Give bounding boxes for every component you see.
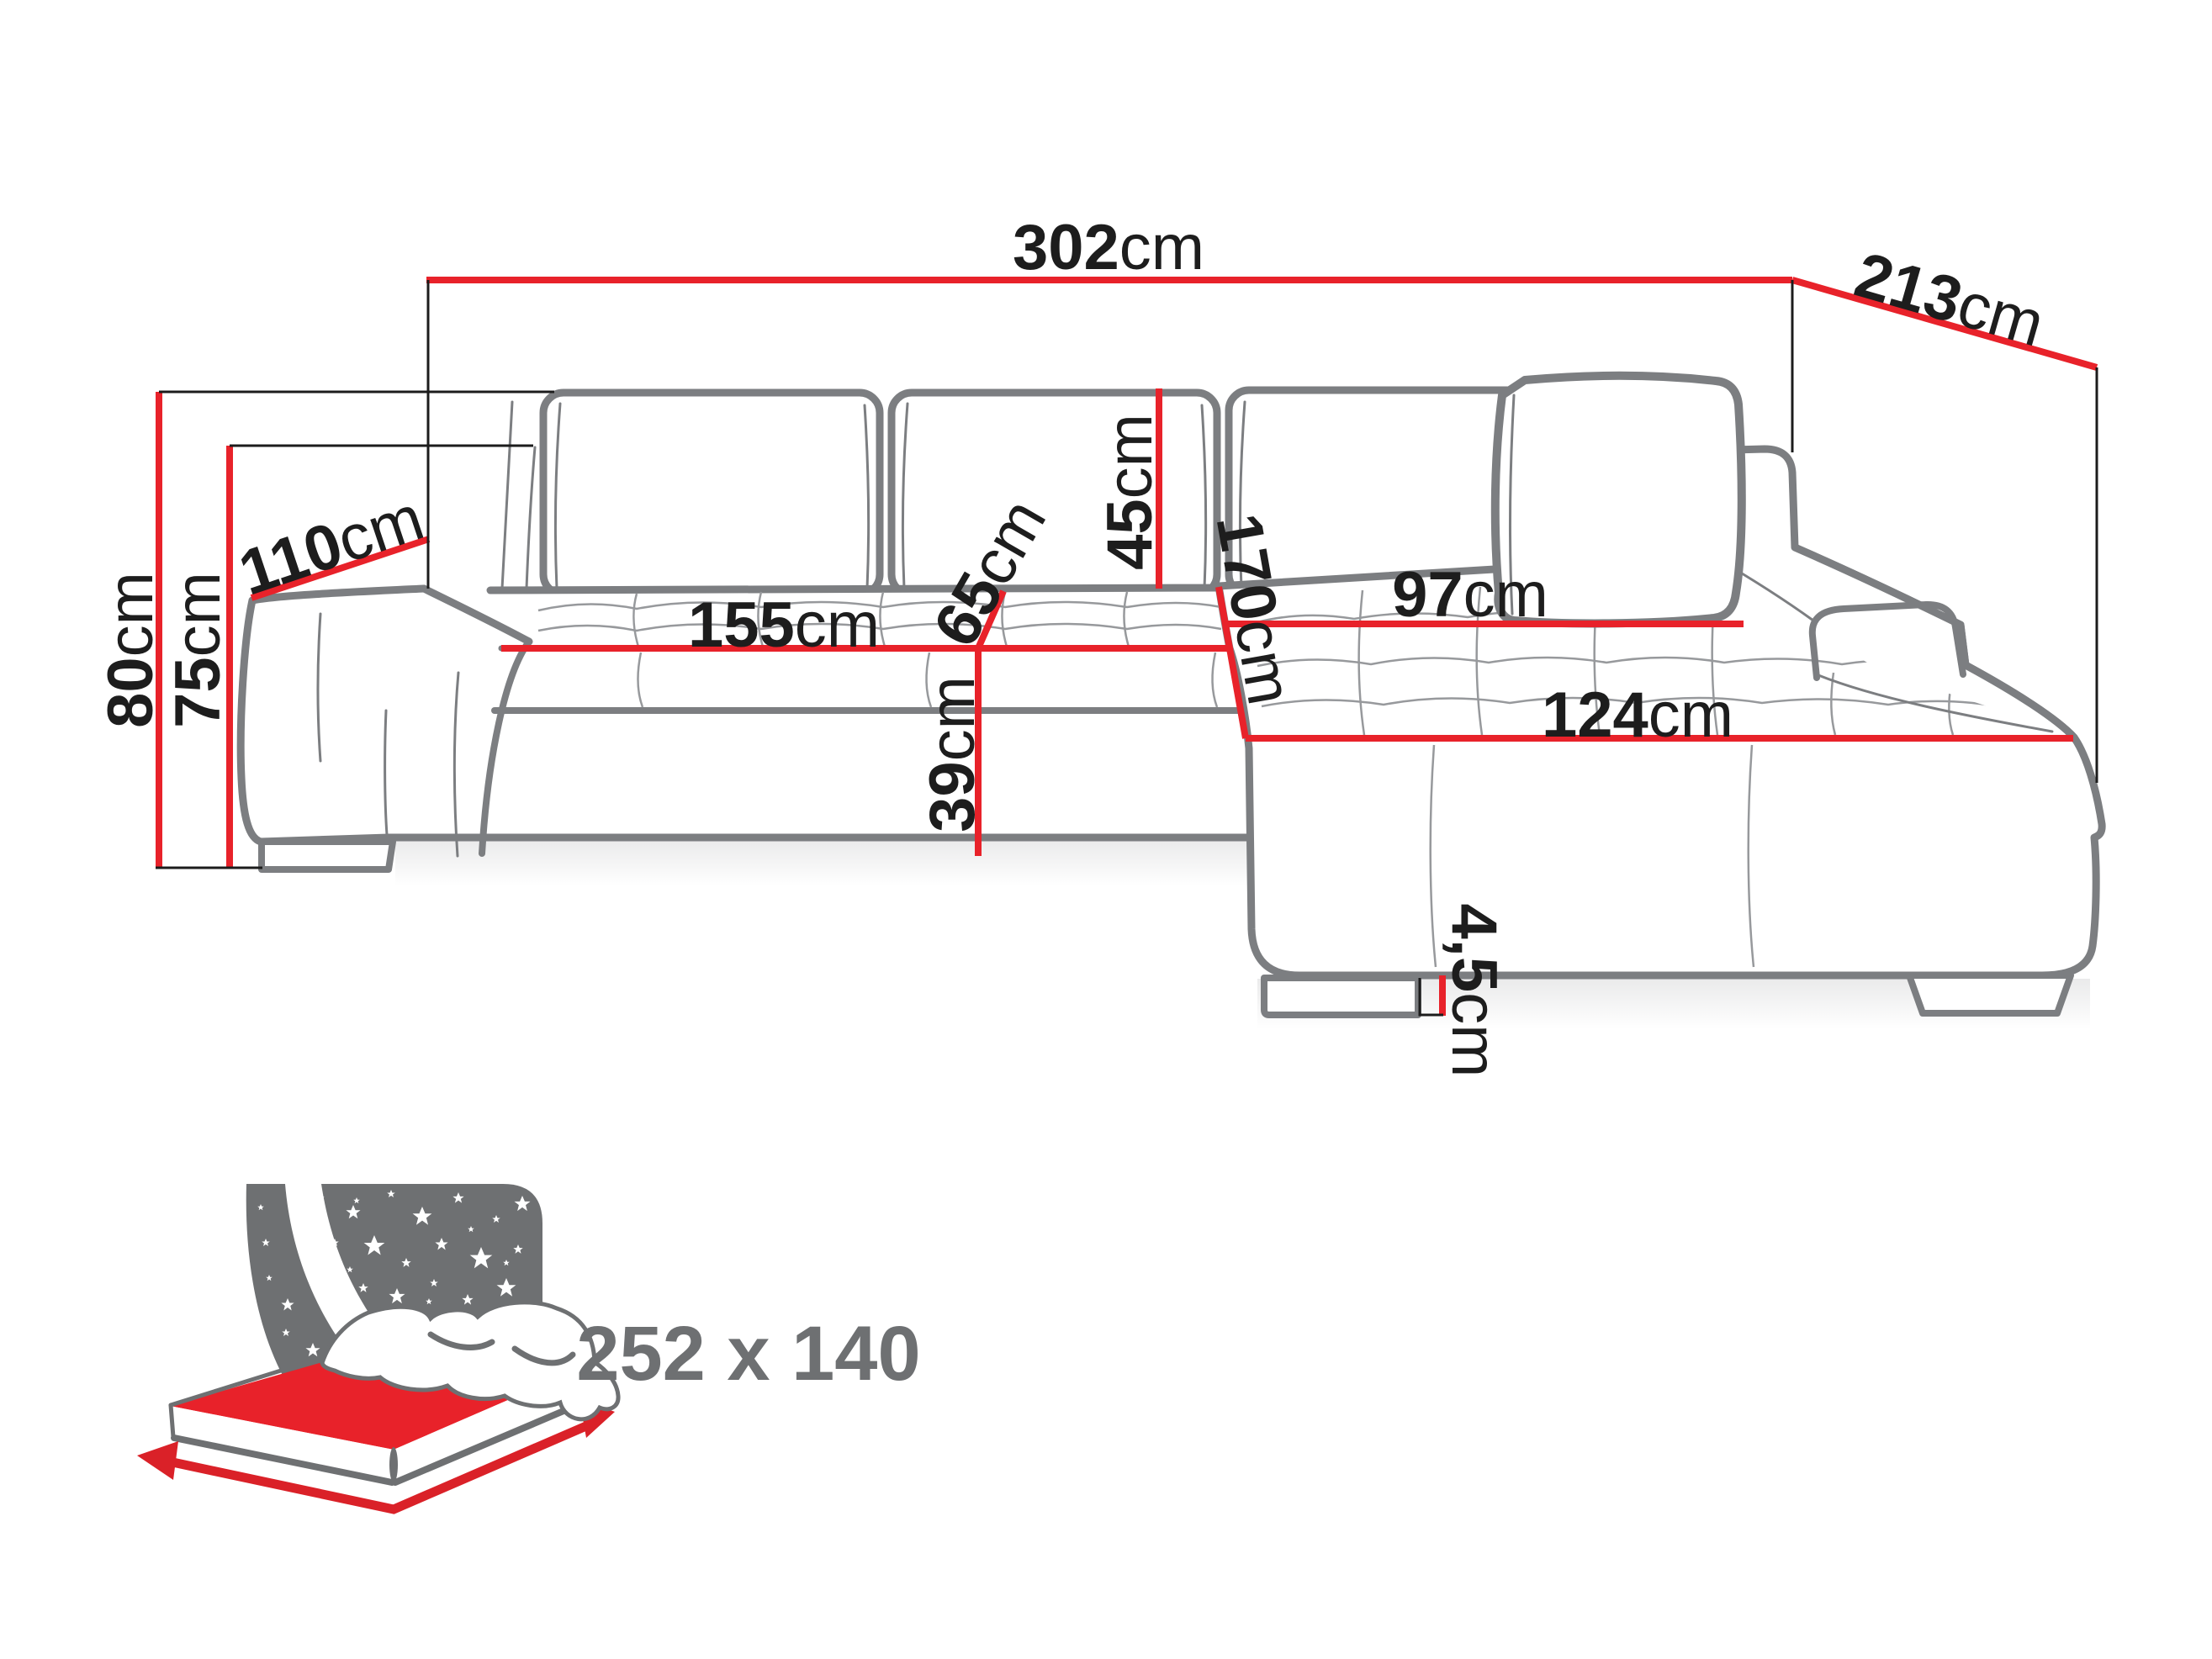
svg-text:124cm: 124cm: [1542, 679, 1733, 751]
svg-text:302cm: 302cm: [1013, 212, 1204, 283]
svg-text:252 x 140: 252 x 140: [576, 1311, 920, 1397]
svg-text:75cm: 75cm: [162, 572, 234, 728]
svg-text:155cm: 155cm: [688, 589, 880, 661]
svg-text:80cm: 80cm: [95, 572, 167, 728]
svg-text:45cm: 45cm: [1094, 414, 1166, 570]
svg-text:39cm: 39cm: [917, 676, 988, 832]
svg-text:97cm: 97cm: [1392, 559, 1548, 631]
svg-text:4,5cm: 4,5cm: [1438, 904, 1510, 1078]
